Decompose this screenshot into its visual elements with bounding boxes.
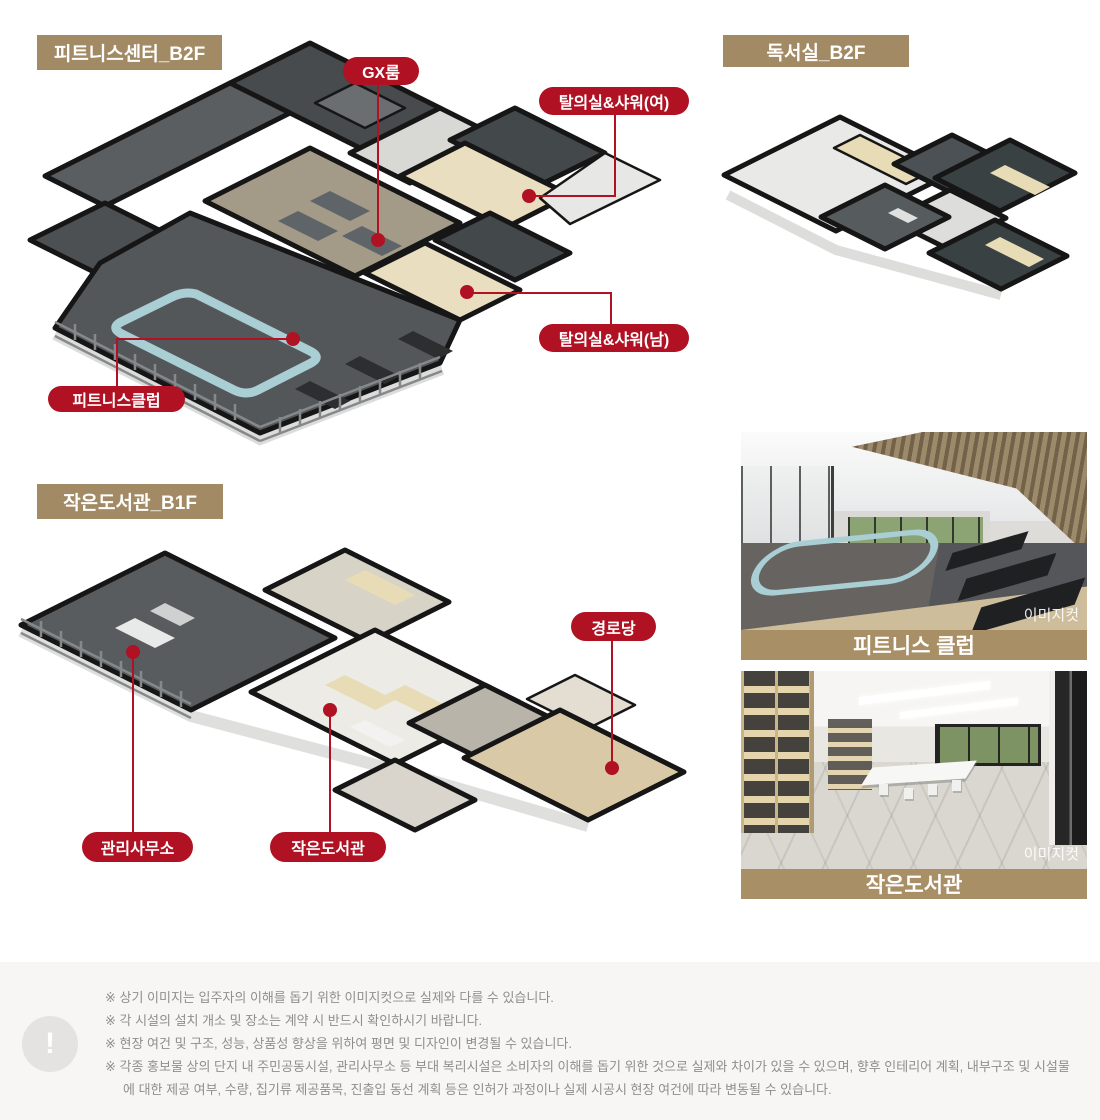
shower-m-callout-line-h — [467, 292, 612, 294]
disclaimer-text-block: ※ 상기 이미지는 입주자의 이해를 돕기 위한 이미지컷으로 실제와 다를 수… — [105, 986, 1080, 1101]
disclaimer-line: ※ 각 시설의 설치 개소 및 장소는 계약 시 반드시 확인하시기 바랍니다. — [105, 1009, 1080, 1032]
watermark-label: 이미지컷 — [1024, 843, 1079, 864]
library-callout-line — [329, 710, 331, 832]
small-library-caption: 작은도서관 — [741, 869, 1087, 899]
club-callout-dot — [286, 332, 300, 346]
disclaimer-line: ※ 상기 이미지는 입주자의 이해를 돕기 위한 이미지컷으로 실제와 다를 수… — [105, 986, 1080, 1009]
fitness-club-photo-card: 이미지컷 피트니스 클럽 — [741, 432, 1087, 660]
reading-room-floorplan-illustration — [700, 95, 1080, 355]
disclaimer-line: ※ 각종 홍보물 상의 단지 내 주민공동시설, 관리사무소 등 부대 복리시설… — [105, 1055, 1080, 1101]
shower-w-callout-line-h — [529, 195, 616, 197]
exclamation-icon: ! — [22, 1016, 78, 1072]
photo-chair — [928, 784, 937, 795]
office-callout-dot — [126, 645, 140, 659]
senior-callout-dot — [605, 761, 619, 775]
shower-m-callout-dot — [460, 285, 474, 299]
callout-fitness-club: 피트니스클럽 — [48, 386, 185, 412]
callout-gx-room: GX룸 — [343, 57, 419, 85]
photo-doors — [1049, 671, 1087, 845]
reading-plan-title: 독서실_B2F — [723, 35, 909, 67]
photo-chair — [952, 780, 961, 791]
photo-chair — [879, 784, 888, 795]
small-library-photo-card: 이미지컷 작은도서관 — [741, 671, 1087, 899]
callout-shower-men: 탈의실&샤워(남) — [539, 324, 689, 352]
club-callout-line-h — [116, 338, 293, 340]
photo-chair — [904, 788, 913, 799]
fitness-club-photo: 이미지컷 — [741, 432, 1087, 630]
community-facility-page: 피트니스센터_B2F 독서실_B2F 작은도서관_B1F GX룸 탈의실&샤워(… — [0, 0, 1100, 1120]
senior-callout-line — [611, 641, 613, 768]
disclaimer-line: ※ 현장 여건 및 구조, 성능, 상품성 향상을 위하여 평면 및 디자인이 … — [105, 1032, 1080, 1055]
library-plan-title: 작은도서관_B1F — [37, 484, 223, 519]
gx-callout-line — [377, 85, 379, 241]
callout-management-office: 관리사무소 — [82, 832, 193, 862]
library-callout-dot — [323, 703, 337, 717]
office-callout-line — [132, 652, 134, 832]
watermark-label: 이미지컷 — [1024, 604, 1079, 625]
callout-small-library: 작은도서관 — [270, 832, 386, 862]
shower-w-callout-line-v — [614, 115, 616, 196]
callout-senior-center: 경로당 — [571, 612, 656, 641]
photo-bookshelf — [741, 671, 814, 833]
callout-shower-women: 탈의실&샤워(여) — [539, 87, 689, 115]
shower-w-callout-dot — [522, 189, 536, 203]
photo-window — [935, 724, 1041, 766]
library-floorplan-illustration — [15, 525, 695, 875]
fitness-club-caption: 피트니스 클럽 — [741, 630, 1087, 660]
club-callout-line-v — [116, 338, 118, 387]
shower-m-callout-line-v — [610, 292, 612, 324]
disclaimer-section: ! ※ 상기 이미지는 입주자의 이해를 돕기 위한 이미지컷으로 실제와 다를… — [0, 962, 1100, 1120]
small-library-photo: 이미지컷 — [741, 671, 1087, 869]
gx-callout-dot — [371, 233, 385, 247]
lower-rooms-area — [335, 760, 475, 830]
